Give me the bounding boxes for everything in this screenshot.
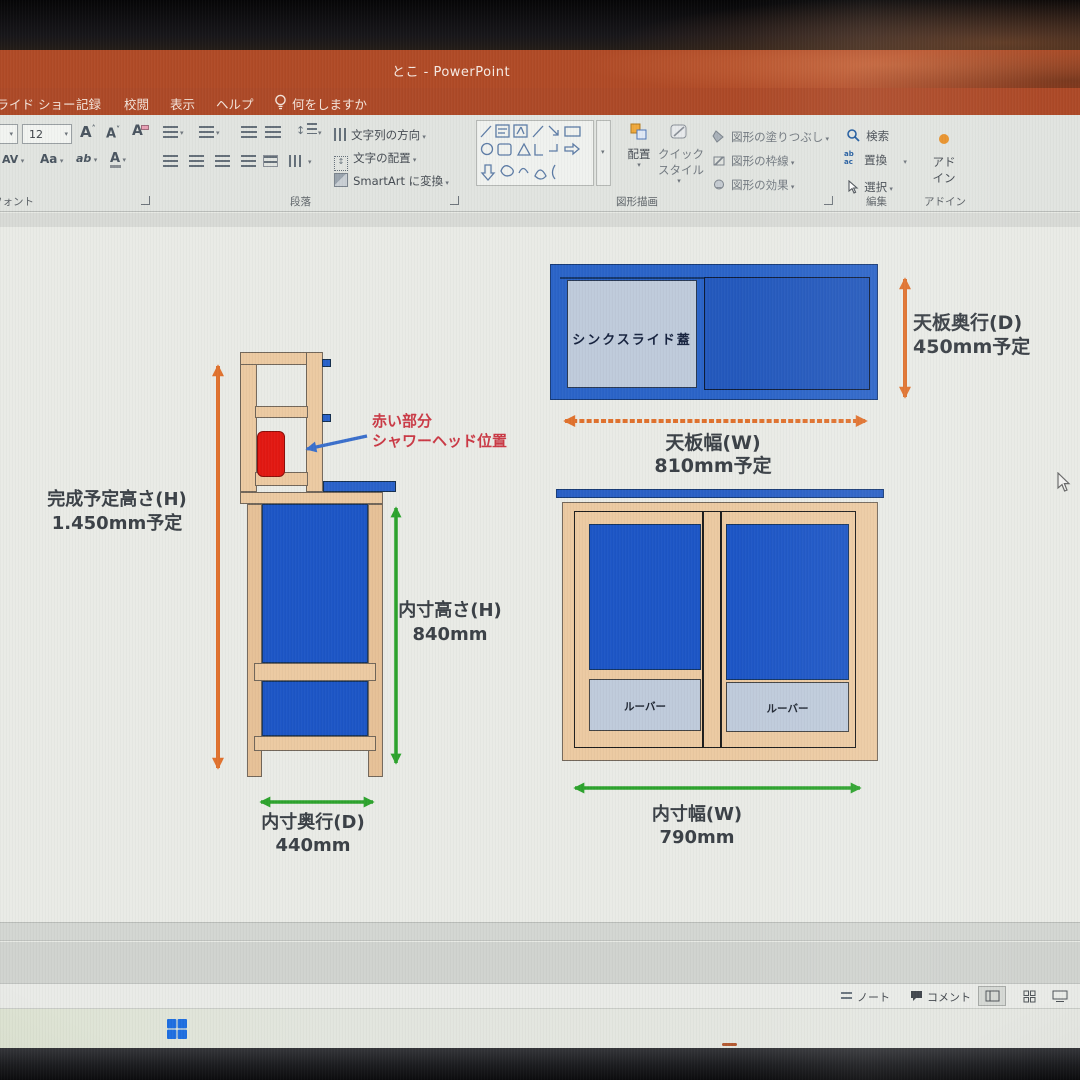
reading-view-icon[interactable] — [1052, 990, 1068, 1003]
total-height-label-1[interactable]: 完成予定高さ(H) — [27, 489, 207, 512]
slide-margin-bottom — [0, 922, 1080, 941]
red-note-line-2[interactable]: シャワーヘッド位置 — [372, 430, 507, 451]
frontview-center-stile-left-line — [702, 511, 704, 748]
sideview-hinge-mid[interactable] — [322, 414, 331, 422]
inner-height-label-2[interactable]: 840mm — [395, 624, 505, 647]
workspace-bottom-band — [0, 942, 1080, 983]
monitor-bezel-top — [0, 0, 1080, 50]
statusbar: ノート コメント — [0, 983, 1080, 1008]
topview-right-panel[interactable] — [704, 277, 870, 390]
normal-view-icon — [985, 990, 1000, 1002]
font-name-combobox[interactable]: ▾ — [0, 124, 18, 144]
paragraph-dialog-launcher-icon[interactable] — [450, 196, 459, 205]
sideview-hinge-top[interactable] — [322, 359, 331, 367]
sink-lid-label[interactable]: シンクスライド蓋 — [568, 329, 696, 348]
down-arrow-icon: ˅ — [116, 125, 120, 134]
comments-button[interactable]: コメント — [927, 989, 971, 1005]
convert-smartart-button[interactable]: SmartArt に変換 ▾ — [334, 170, 449, 189]
frontview-left-door-panel[interactable] — [589, 524, 701, 670]
sideview-counter-board[interactable] — [240, 492, 383, 504]
find-button[interactable]: 検索 — [846, 125, 889, 144]
mouse-cursor — [1056, 472, 1072, 493]
decrease-indent-icon[interactable] — [241, 126, 257, 138]
inner-width-label-1[interactable]: 内寸幅(W) — [637, 804, 757, 827]
inner-height-label-1[interactable]: 内寸高さ(H) — [395, 600, 505, 623]
comments-icon — [910, 990, 923, 1002]
align-text-icon: ↕ — [334, 156, 348, 171]
font-group-label: フォント — [0, 194, 34, 209]
taskbar: 検索 G5 ♠ O P — [0, 1008, 1080, 1048]
chevron-down-icon: ▾ — [9, 131, 13, 138]
justify-icon[interactable] — [241, 155, 256, 167]
notes-icon — [841, 992, 852, 1001]
select-button[interactable]: 選択 ▾ — [846, 176, 893, 195]
tab-help[interactable]: ヘルプ — [216, 94, 254, 113]
tab-review[interactable]: 校閲 — [124, 94, 149, 113]
top-width-label-2[interactable]: 810mm予定 — [653, 455, 773, 479]
search-icon — [846, 128, 861, 143]
distribute-icon[interactable] — [263, 155, 278, 167]
addins-button[interactable]: アド イン — [926, 129, 962, 186]
sideview-back-left-post[interactable] — [240, 352, 257, 492]
inner-depth-label-1[interactable]: 内寸奥行(D) — [252, 812, 374, 835]
change-case-button[interactable]: Aa ▾ — [40, 152, 63, 166]
monitor-photo: とこ - PowerPoint スライド ショー 記録 校閲 表示 ヘルプ 何を… — [0, 0, 1080, 1080]
quick-styles-icon — [668, 122, 690, 142]
slide-sorter-view-icon[interactable] — [1023, 990, 1036, 1003]
editing-group-label: 編集 — [866, 194, 887, 209]
shape-outline-button[interactable]: 図形の枠線 ▾ — [712, 150, 794, 169]
numbering-icon[interactable] — [199, 126, 214, 138]
notes-button[interactable]: ノート — [857, 989, 890, 1005]
total-height-label-2[interactable]: 1.450mm予定 — [27, 513, 207, 536]
window-title: とこ - PowerPoint — [392, 61, 510, 80]
arrange-button[interactable]: 配置 ▾ — [622, 122, 656, 169]
shape-fill-button[interactable]: 図形の塗りつぶし ▾ — [712, 126, 829, 145]
align-left-icon[interactable] — [163, 155, 178, 167]
frontview-top-strip[interactable] — [556, 489, 884, 498]
drawing-dialog-launcher-icon[interactable] — [824, 196, 833, 205]
clear-formatting-button[interactable]: A — [132, 123, 143, 139]
eraser-icon — [141, 125, 149, 130]
frontview-center-stile-right-line — [720, 511, 722, 748]
shower-head-red-block[interactable] — [257, 431, 285, 477]
ribbon: ▾ 12 ▾ A˄ A˅ A AV ▾ Aa ▾ ab ▾ A ▾ フォント ▾… — [0, 115, 1080, 212]
text-direction-icon — [334, 128, 346, 141]
bullets-icon[interactable] — [163, 126, 178, 138]
louver-label-right[interactable]: ルーバー — [727, 701, 848, 716]
font-color-button[interactable]: A ▾ — [110, 151, 126, 166]
grow-font-button[interactable]: A˄ — [80, 123, 96, 141]
up-arrow-icon: ˄ — [92, 124, 96, 133]
font-size-combobox[interactable]: 12 ▾ — [22, 124, 72, 144]
titlebar: とこ - PowerPoint — [0, 50, 1080, 88]
align-center-icon[interactable] — [189, 155, 204, 167]
align-text-button[interactable]: ↕ 文字の配置 ▾ — [334, 147, 416, 171]
powerpoint-active-indicator — [722, 1043, 737, 1046]
monitor-bezel-bottom — [0, 1048, 1080, 1080]
addin-dot-icon — [939, 134, 949, 144]
character-spacing-button[interactable]: AV ▾ — [2, 153, 24, 166]
shapes-gallery[interactable] — [476, 120, 594, 186]
lightbulb-icon — [274, 94, 287, 110]
paragraph-group-label: 段落 — [290, 194, 311, 209]
shapes-gallery-scrollbar[interactable]: ▾ — [596, 120, 611, 186]
smartart-icon — [334, 173, 348, 187]
tab-view[interactable]: 表示 — [170, 94, 195, 113]
quick-styles-button[interactable]: クイック スタイル ▾ — [658, 122, 700, 185]
ribbon-tab-row: スライド ショー 記録 校閲 表示 ヘルプ 何をしますか — [0, 88, 1080, 115]
tab-slideshow[interactable]: スライド ショー — [0, 94, 75, 113]
font-size-value: 12 — [29, 128, 43, 141]
shrink-font-button[interactable]: A˅ — [106, 125, 120, 141]
columns-icon[interactable] — [289, 155, 303, 167]
view-normal-button[interactable] — [978, 986, 1006, 1006]
start-button[interactable] — [166, 1018, 188, 1040]
line-spacing-icon[interactable]: ↕ — [296, 123, 317, 137]
top-depth-label-1[interactable]: 天板奥行(D) — [913, 312, 1033, 336]
shape-effects-button[interactable]: 図形の効果 ▾ — [712, 174, 794, 193]
shape-outline-icon — [712, 154, 726, 167]
sideview-counter-blue-strip[interactable] — [323, 481, 396, 492]
sideview-upper-blue-panel[interactable] — [262, 504, 368, 663]
replace-icon: abac — [844, 151, 859, 166]
slide-margin-top — [0, 213, 1080, 227]
replace-button[interactable]: abac 置換 ▾ — [844, 149, 907, 168]
frontview-left-louver[interactable]: ルーバー — [589, 679, 701, 731]
color-bar-icon — [110, 165, 121, 168]
frontview-right-door-panel[interactable] — [726, 524, 849, 680]
red-note-line-1[interactable]: 赤い部分 — [372, 410, 432, 431]
inner-depth-label-2[interactable]: 440mm — [252, 835, 374, 858]
tab-record[interactable]: 記録 — [76, 94, 101, 113]
sideview-rail-1[interactable] — [254, 663, 376, 681]
inner-width-label-2[interactable]: 790mm — [637, 827, 757, 850]
frontview-right-louver[interactable]: ルーバー — [726, 682, 849, 732]
sideview-lower-blue-panel[interactable] — [262, 681, 368, 736]
chevron-down-icon: ▾ — [64, 131, 68, 138]
arrange-icon — [629, 122, 649, 142]
align-right-icon[interactable] — [215, 155, 230, 167]
highlight-button[interactable]: ab ▾ — [76, 152, 97, 165]
font-dialog-launcher-icon[interactable] — [141, 196, 150, 205]
shape-icons — [477, 121, 593, 185]
shape-effects-icon — [712, 178, 726, 191]
louver-label-left[interactable]: ルーバー — [590, 699, 700, 714]
shape-fill-icon — [712, 130, 726, 143]
sideview-back-mid-bar[interactable] — [255, 406, 308, 418]
drawing-group-label: 図形描画 — [616, 194, 658, 209]
top-width-label-1[interactable]: 天板幅(W) — [653, 432, 773, 456]
increase-indent-icon[interactable] — [265, 126, 281, 138]
tell-me-box[interactable]: 何をしますか — [292, 94, 367, 113]
topview-sink-lid-panel[interactable]: シンクスライド蓋 — [567, 280, 697, 388]
top-depth-label-2[interactable]: 450mm予定 — [913, 336, 1033, 360]
sideview-back-right-post[interactable] — [306, 352, 323, 492]
addins-group-label: アドイン — [924, 194, 966, 209]
text-direction-button[interactable]: 文字列の方向 ▾ — [334, 124, 426, 143]
select-cursor-icon — [846, 180, 859, 194]
sideview-rail-2[interactable] — [254, 736, 376, 751]
